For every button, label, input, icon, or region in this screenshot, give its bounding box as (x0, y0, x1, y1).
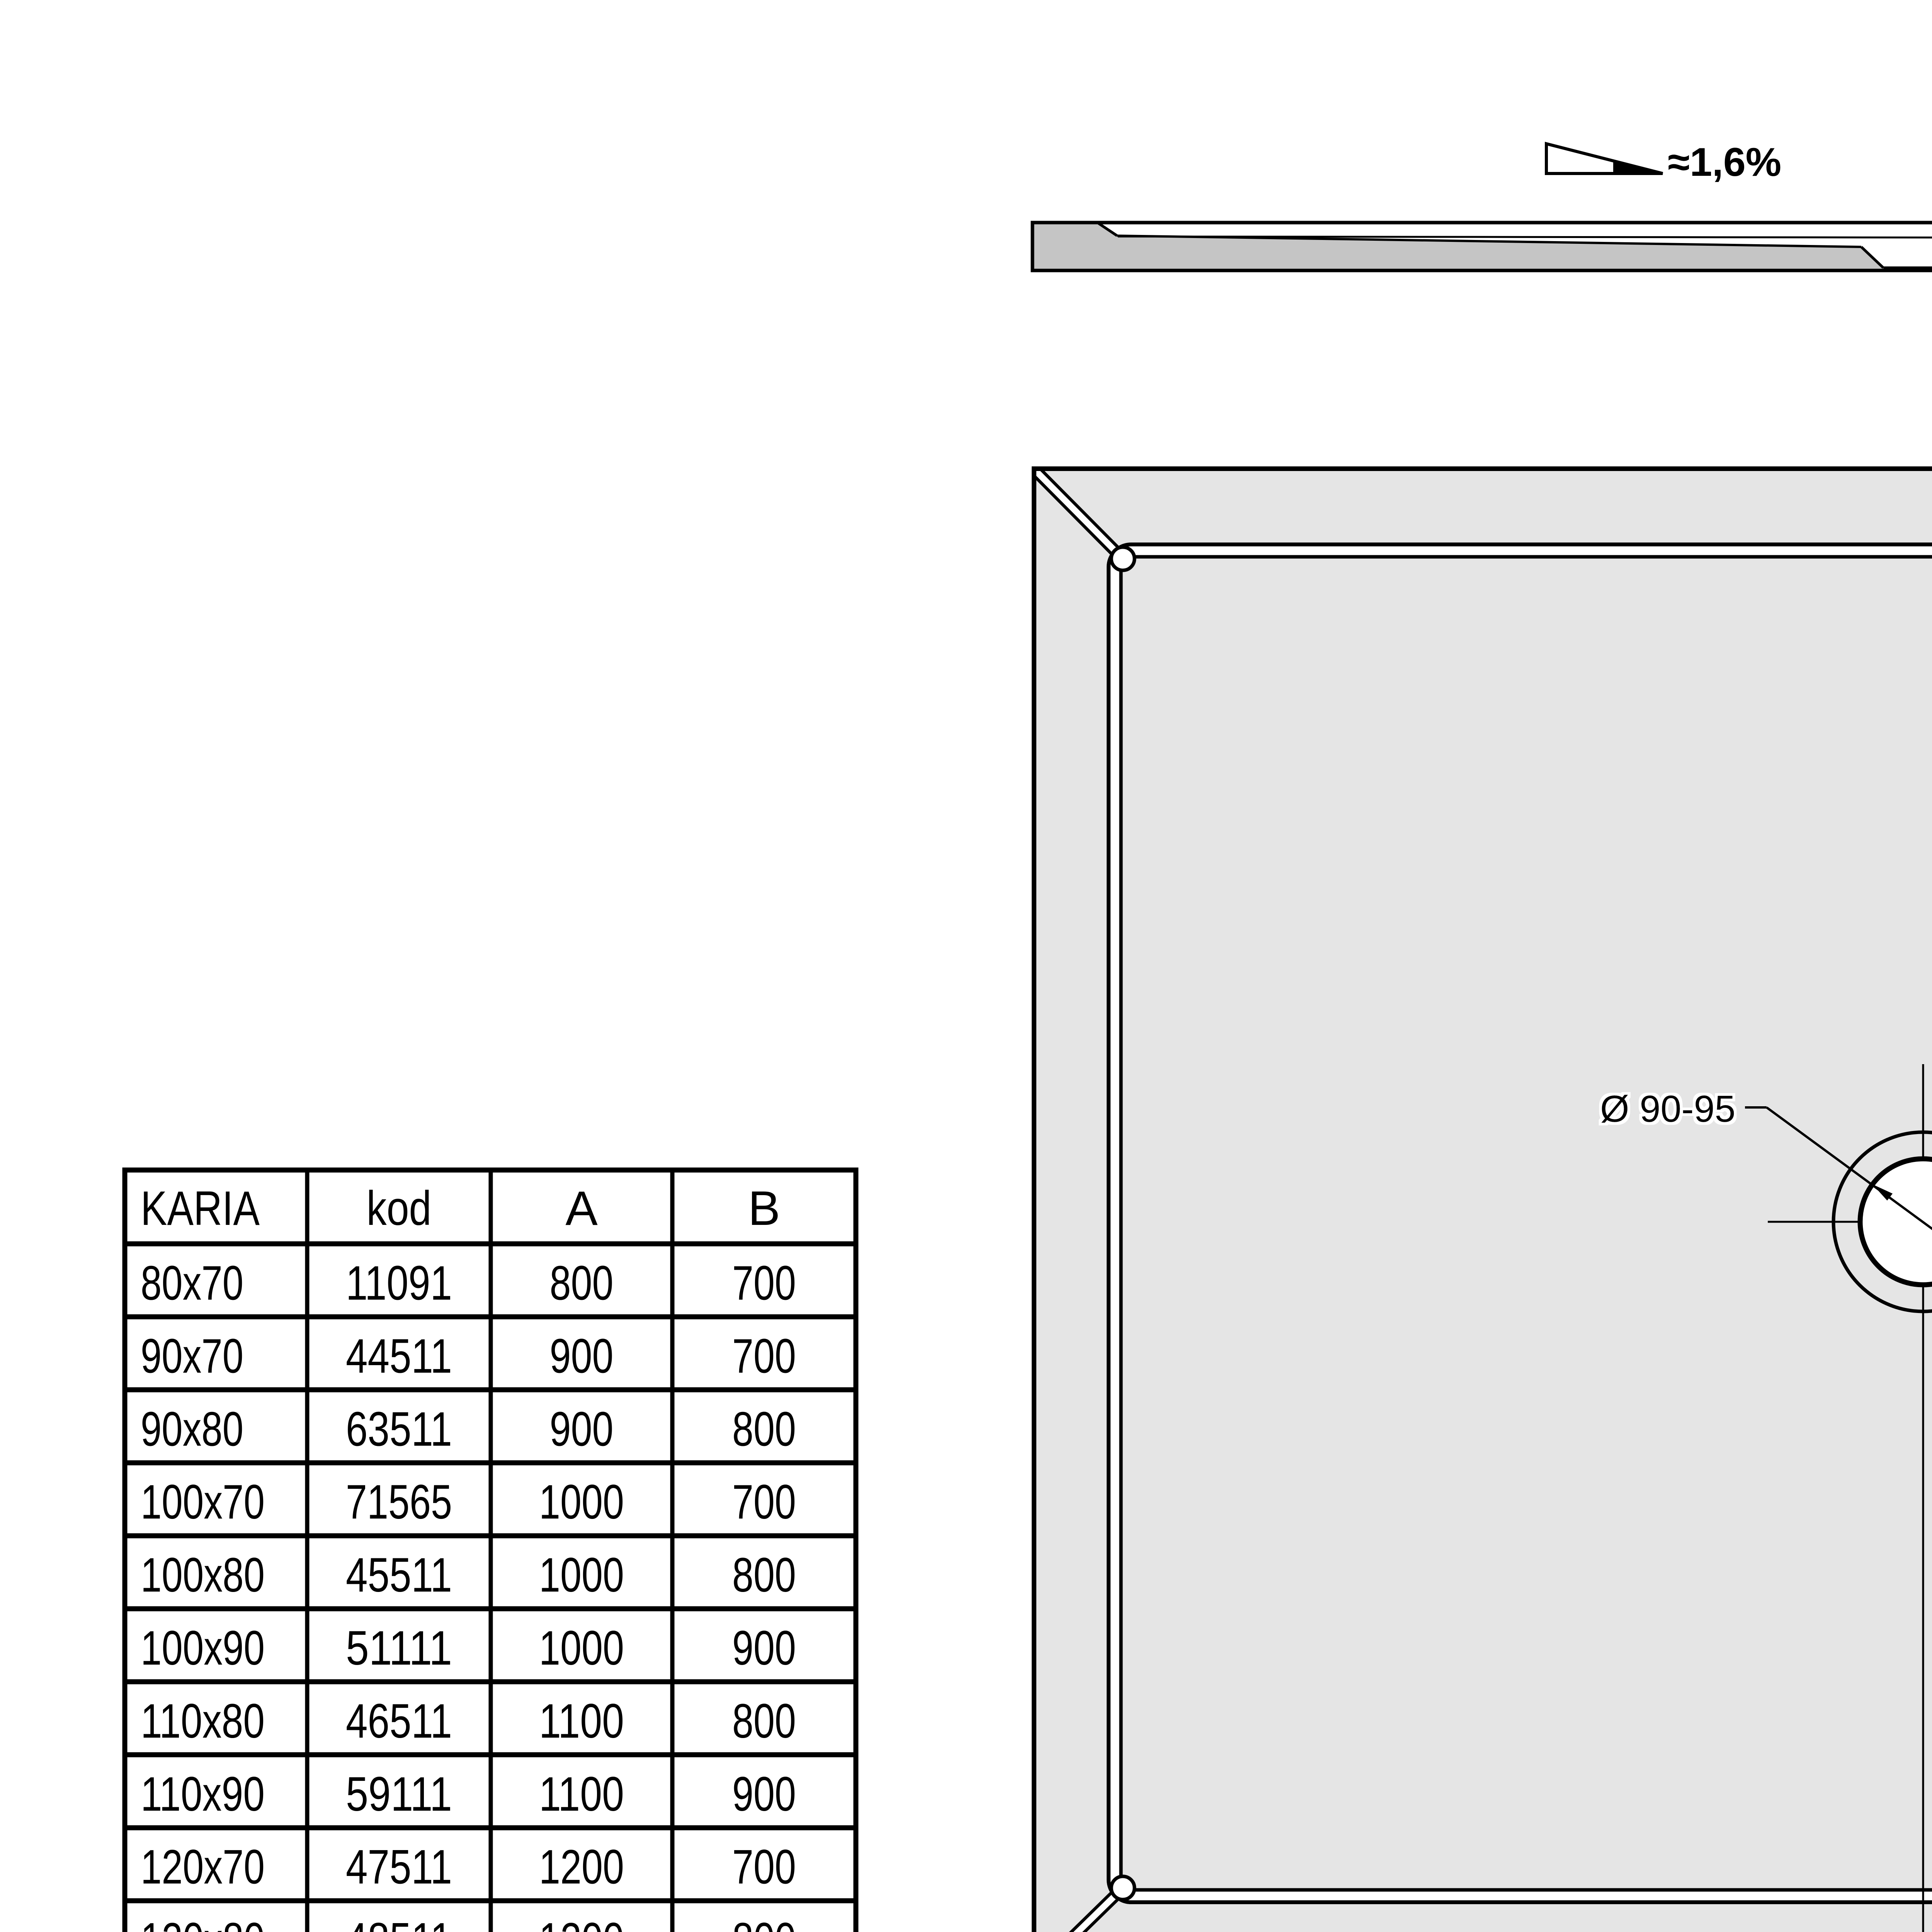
svg-text:51111: 51111 (346, 1621, 452, 1675)
svg-text:1000: 1000 (539, 1548, 624, 1602)
svg-text:90x70: 90x70 (141, 1329, 243, 1383)
svg-text:900: 900 (732, 1767, 796, 1821)
svg-text:≈1,6%: ≈1,6% (1668, 140, 1781, 185)
svg-text:800: 800 (732, 1913, 796, 1932)
svg-text:1200: 1200 (539, 1840, 624, 1894)
svg-text:100x80: 100x80 (141, 1548, 265, 1602)
svg-text:47511: 47511 (346, 1840, 452, 1894)
svg-text:800: 800 (732, 1402, 796, 1456)
svg-text:1200: 1200 (539, 1913, 624, 1932)
svg-text:63511: 63511 (346, 1402, 452, 1456)
svg-text:120x80: 120x80 (141, 1913, 265, 1932)
svg-text:900: 900 (732, 1621, 796, 1675)
svg-text:59111: 59111 (346, 1767, 452, 1821)
svg-text:A: A (565, 1182, 598, 1235)
svg-text:120x70: 120x70 (141, 1840, 265, 1894)
svg-text:1100: 1100 (539, 1694, 624, 1748)
svg-text:800: 800 (732, 1694, 796, 1748)
svg-text:110x90: 110x90 (141, 1767, 265, 1821)
svg-text:48511: 48511 (346, 1913, 452, 1932)
svg-text:71565: 71565 (346, 1475, 452, 1529)
svg-text:110x80: 110x80 (141, 1694, 265, 1748)
svg-text:90x80: 90x80 (141, 1402, 243, 1456)
svg-text:80x70: 80x70 (141, 1256, 243, 1310)
svg-text:700: 700 (732, 1329, 796, 1383)
svg-text:1000: 1000 (539, 1475, 624, 1529)
svg-text:KARIA: KARIA (141, 1182, 260, 1235)
svg-text:700: 700 (732, 1475, 796, 1529)
svg-text:45511: 45511 (346, 1548, 452, 1602)
svg-text:700: 700 (732, 1840, 796, 1894)
svg-text:B: B (748, 1182, 780, 1235)
svg-text:100x90: 100x90 (141, 1621, 265, 1675)
svg-text:800: 800 (732, 1548, 796, 1602)
svg-text:Ø 90-95: Ø 90-95 (1600, 1088, 1736, 1130)
svg-text:kod: kod (367, 1182, 432, 1235)
svg-text:1100: 1100 (539, 1767, 624, 1821)
svg-text:44511: 44511 (346, 1329, 452, 1383)
svg-text:11091: 11091 (346, 1256, 452, 1310)
svg-text:100x70: 100x70 (141, 1475, 265, 1529)
svg-text:1000: 1000 (539, 1621, 624, 1675)
svg-text:900: 900 (550, 1329, 614, 1383)
svg-text:900: 900 (550, 1402, 614, 1456)
svg-text:46511: 46511 (346, 1694, 452, 1748)
svg-text:700: 700 (732, 1256, 796, 1310)
svg-text:800: 800 (550, 1256, 614, 1310)
